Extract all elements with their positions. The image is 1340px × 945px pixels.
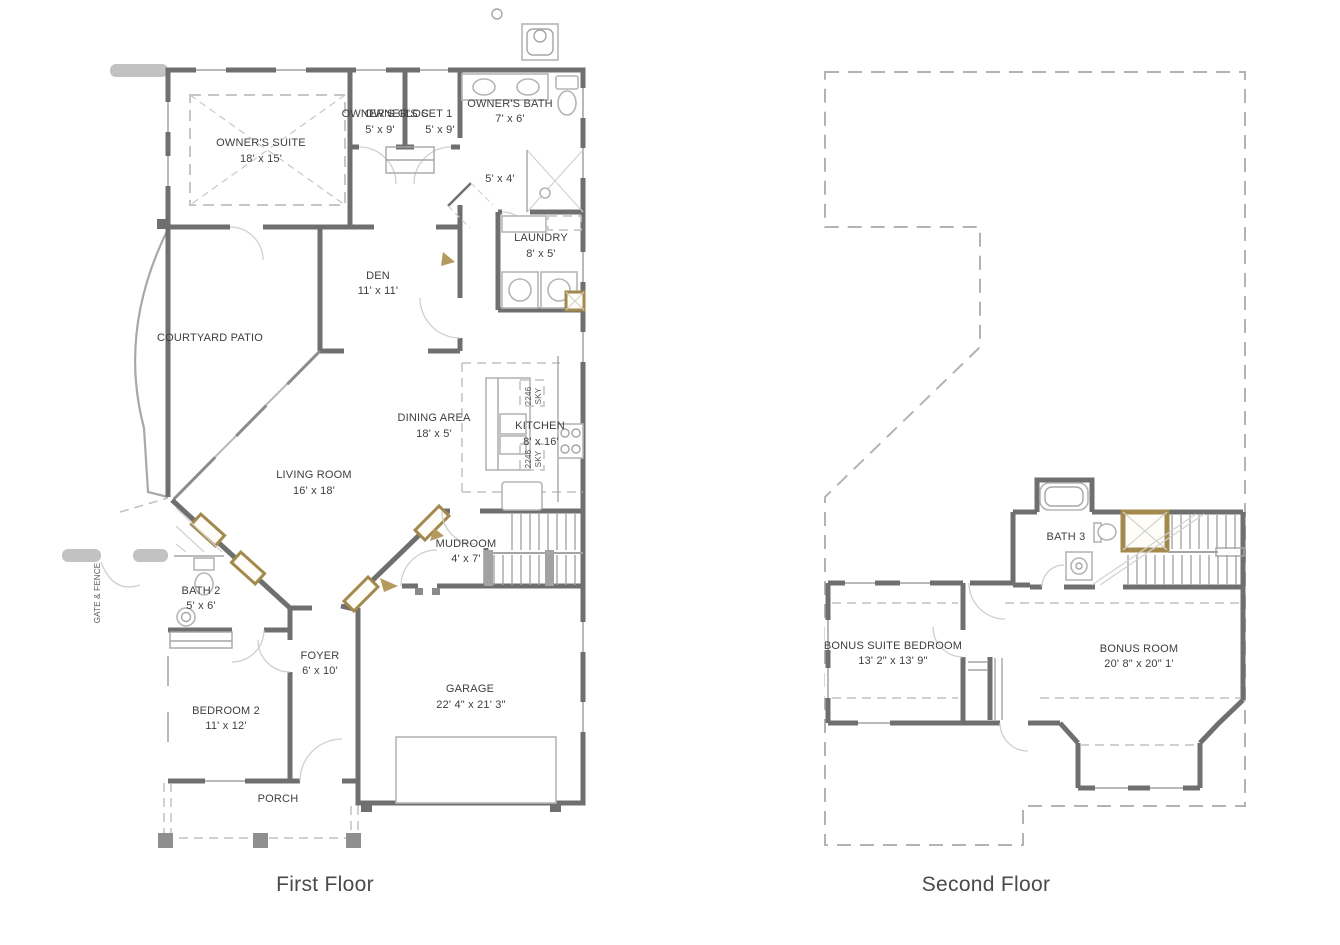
owners-closet1-label: OWNER'S CLOSET 1 <box>342 108 453 120</box>
laundry-fixtures <box>502 216 584 310</box>
mudroom-dims: 4' x 7' <box>451 553 480 565</box>
living-label: LIVING ROOM <box>276 469 352 481</box>
bath2-dims: 5' x 6' <box>186 600 215 612</box>
bedroom2-dims: 11' x 12' <box>205 720 246 732</box>
den-label: DEN <box>366 270 390 282</box>
fence-bar-left <box>62 549 101 562</box>
skylight-tag-2: SKY <box>534 450 543 467</box>
owners-bath-dims: 7' x 6' <box>495 113 524 125</box>
owners-suite-label: OWNER'S SUITE <box>216 137 306 149</box>
foyer-dims: 6' x 10' <box>302 665 338 677</box>
garage-fixtures <box>396 737 556 803</box>
skylight-code-2: 2246 <box>524 449 533 468</box>
tray-ceiling <box>190 95 345 205</box>
garage-dims: 22' 4" x 21' 3" <box>436 699 505 711</box>
kitchen-dims: 8' x 16' <box>523 436 559 448</box>
porch-label: PORCH <box>258 793 299 805</box>
dining-label: DINING AREA <box>397 412 471 424</box>
courtyard-label: COURTYARD PATIO <box>157 332 263 344</box>
dining-dims: 18' x 5' <box>416 428 452 440</box>
second-floor-title: Second Floor <box>922 873 1051 896</box>
first-floor-stairs <box>484 514 583 586</box>
owners-suite-dims: 18' x 15' <box>240 153 282 165</box>
roof-outline <box>825 72 1245 845</box>
closet1-dims: 5' x 9' <box>425 124 454 136</box>
bonus-suite-bedroom-label: BONUS SUITE BEDROOM <box>824 640 962 652</box>
mudroom-label: MUDROOM <box>436 538 497 550</box>
owners-bath-label: OWNER'S BATH <box>467 98 553 110</box>
floor-plan-drawing: OWNER'S SUITE 18' x 15' OWNER'S C OWNER'… <box>0 0 1340 945</box>
laundry-dims: 8' x 5' <box>526 248 555 260</box>
bath3-label: BATH 3 <box>1047 531 1086 543</box>
bonus-suite-bedroom-dims: 13' 2" x 13' 9" <box>858 655 927 667</box>
second-floor-windows <box>828 583 1183 788</box>
garage-label: GARAGE <box>446 683 494 695</box>
kitchen-fixtures <box>462 356 583 510</box>
first-floor-plan: OWNER'S SUITE 18' x 15' OWNER'S C OWNER'… <box>62 9 584 896</box>
first-floor-title: First Floor <box>276 873 374 896</box>
hall-closet <box>968 658 1002 720</box>
patio-boundary <box>120 229 168 512</box>
living-dims: 16' x 18' <box>293 485 335 497</box>
second-floor-plan: BATH 3 BONUS SUITE BEDROOM 13' 2" x 13' … <box>824 72 1245 896</box>
gate-fence-markers <box>62 64 168 587</box>
fence-bar-right <box>133 549 168 562</box>
bonus-room-label: BONUS ROOM <box>1100 643 1178 655</box>
bath2-label: BATH 2 <box>182 585 221 597</box>
bedroom2-label: BEDROOM 2 <box>192 705 260 717</box>
laundry-label: LAUNDRY <box>514 232 568 244</box>
kitchen-label: KITCHEN <box>515 420 565 432</box>
shower-dims: 5' x 4' <box>485 173 514 185</box>
skylight-tag-1: SKY <box>534 387 543 404</box>
closet2-dims: 5' x 9' <box>365 124 394 136</box>
floor-plan-page: OWNER'S SUITE 18' x 15' OWNER'S C OWNER'… <box>0 0 1340 945</box>
skylight-code-1: 2246 <box>524 386 533 405</box>
den-dims: 11' x 11' <box>358 285 398 297</box>
gate-fence-label: GATE & FENCE <box>93 563 102 623</box>
foyer-label: FOYER <box>301 650 340 662</box>
bonus-room-dims: 20' 8" x 20" 1' <box>1104 658 1173 670</box>
fence-bar-top <box>110 64 168 77</box>
